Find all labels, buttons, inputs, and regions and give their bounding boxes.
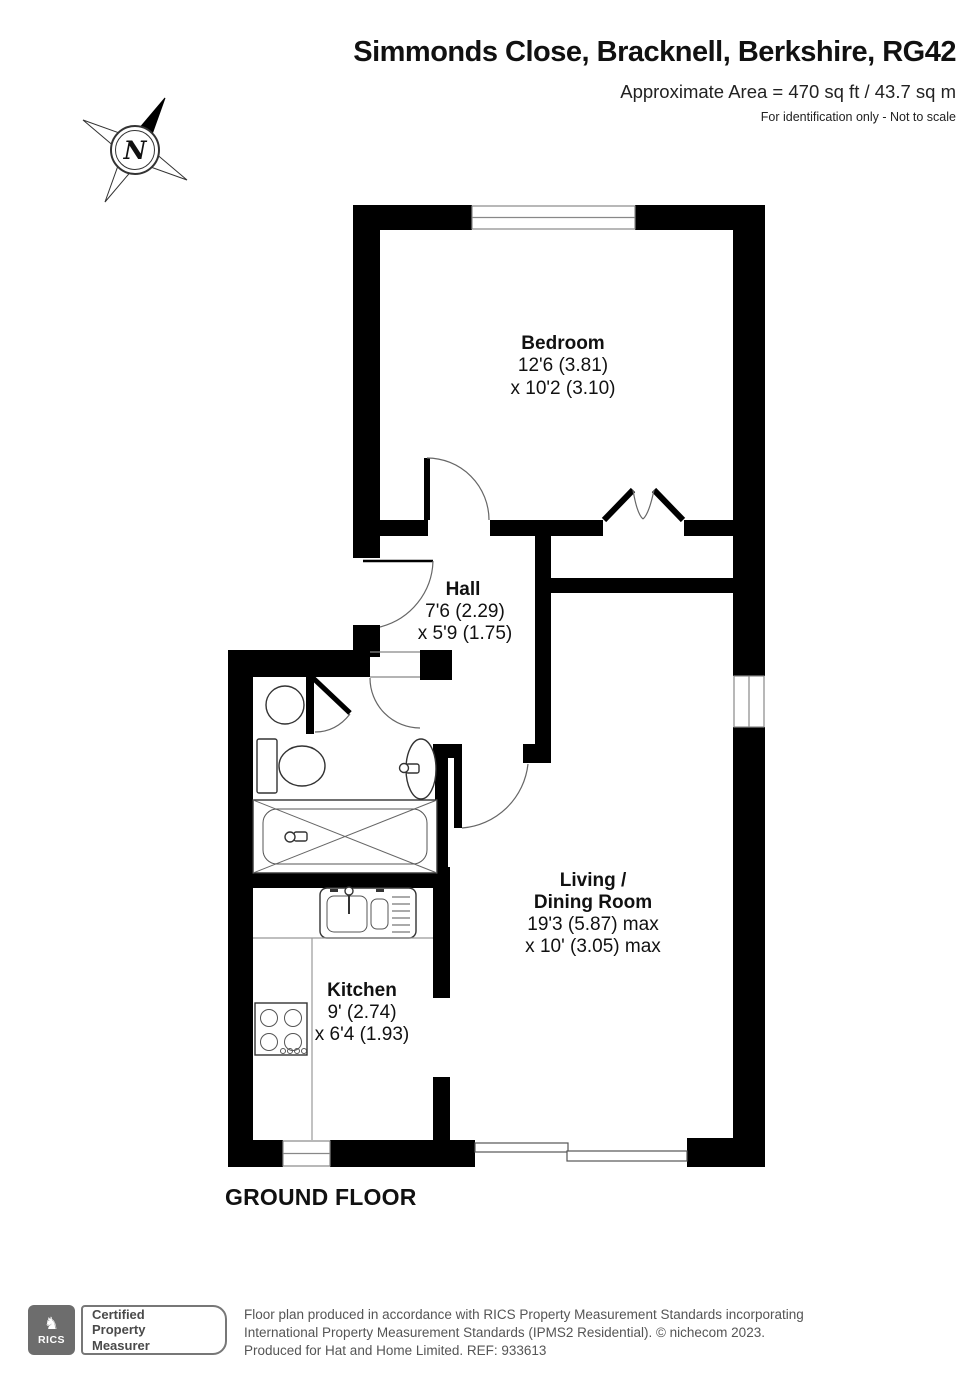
certified-property-measurer-badge: Certified Property Measurer: [81, 1305, 227, 1355]
kitchen-window: [283, 1141, 330, 1166]
wall-segment: [228, 1140, 283, 1167]
footer-disclaimer: Floor plan produced in accordance with R…: [244, 1306, 964, 1360]
bedroom-door: [424, 458, 489, 520]
sliding-panel: [567, 1151, 687, 1161]
basin-tap-knob: [400, 764, 409, 773]
door-leaf: [454, 750, 462, 828]
bathroom-fixtures: [253, 686, 437, 873]
water-cylinder: [266, 686, 304, 724]
wall-segment: [228, 650, 253, 1167]
kitchen-sink: [320, 887, 416, 938]
living-room-door: [454, 750, 528, 828]
footer-line3: Produced for Hat and Home Limited. REF: …: [244, 1342, 964, 1360]
wardrobe-doors: [604, 490, 683, 520]
bathtub: [253, 800, 437, 873]
badge-line3: Measurer: [92, 1338, 225, 1353]
footer-line2: International Property Measurement Stand…: [244, 1324, 964, 1342]
floor-label: GROUND FLOOR: [225, 1184, 417, 1211]
cupboard-leaf: [313, 678, 350, 713]
cupboard-swing-arc: [315, 714, 350, 732]
door-swing-arc: [427, 458, 489, 520]
living-label-line2: Dining Room: [534, 892, 652, 913]
floorplan-page: Simmonds Close, Bracknell, Berkshire, RG…: [0, 0, 980, 1385]
rics-logo-text: RICS: [38, 1334, 65, 1346]
bath-tap-knob: [285, 832, 295, 842]
wall-segment: [433, 888, 450, 998]
door-leaf: [424, 458, 430, 520]
patio-sliding-door: [475, 1143, 687, 1161]
wall-segment: [420, 650, 452, 680]
sink-handle: [376, 889, 384, 892]
living-dim1: 19'3 (5.87) max: [527, 914, 659, 935]
entrance-door: [363, 561, 433, 627]
kitchen-label: Kitchen: [327, 980, 397, 1001]
airing-cupboard-partition: [306, 677, 314, 734]
hob: [255, 1003, 307, 1055]
living-label-line1: Living /: [560, 870, 627, 891]
sliding-panel: [475, 1143, 568, 1152]
badge-line2: Property: [92, 1322, 225, 1337]
wash-basin: [400, 739, 437, 799]
sink-handle: [330, 889, 338, 892]
floorplan-drawing: Bedroom 12'6 (3.81) x 10'2 (3.10) Hall 7…: [0, 0, 980, 1385]
door-swing-arc: [370, 678, 420, 728]
wall-segment: [733, 727, 765, 1167]
bedroom-dim1: 12'6 (3.81): [518, 355, 608, 376]
wardrobe-swing-arc: [633, 490, 643, 519]
wall-segment: [733, 205, 765, 676]
kitchen-dim2: x 6'4 (1.93): [315, 1024, 409, 1045]
bedroom-dim2: x 10'2 (3.10): [510, 378, 615, 399]
rics-lion-icon: ♞: [44, 1315, 59, 1332]
living-side-window: [734, 676, 764, 727]
badge-line1: Certified: [92, 1307, 225, 1322]
wall-segment: [687, 1138, 765, 1167]
wall-segment: [353, 205, 380, 558]
toilet-bowl: [279, 746, 325, 786]
airing-cupboard-door: [313, 678, 350, 732]
living-dim2: x 10' (3.05) max: [525, 936, 661, 957]
toilet-cistern: [257, 739, 277, 793]
sink-faucet: [345, 887, 353, 895]
hall-dim2: x 5'9 (1.75): [418, 623, 512, 644]
hall-dim1: 7'6 (2.29): [425, 601, 505, 622]
wardrobe-leaf: [654, 490, 683, 520]
wall-segment: [330, 1140, 475, 1167]
bathroom-door: [370, 652, 420, 728]
bedroom-label: Bedroom: [521, 333, 604, 354]
wall-segment: [523, 744, 551, 763]
wall-segment: [548, 578, 733, 593]
wall-segment: [535, 520, 551, 744]
wall-segment: [433, 1077, 450, 1140]
wall-segment: [684, 520, 733, 536]
wall-segment: [253, 650, 370, 677]
footer-line1: Floor plan produced in accordance with R…: [244, 1306, 964, 1324]
bedroom-window: [472, 206, 635, 229]
rics-logo: ♞ RICS: [28, 1305, 75, 1355]
toilet: [257, 739, 325, 793]
door-swing-arc: [462, 764, 528, 828]
wardrobe-leaf: [604, 490, 633, 520]
kitchen-dim1: 9' (2.74): [327, 1002, 396, 1023]
bath-tap: [294, 832, 307, 841]
hall-label: Hall: [446, 579, 481, 600]
wall-segment: [380, 520, 428, 536]
walls: [228, 205, 765, 1167]
wardrobe-swing-arc: [643, 490, 654, 519]
